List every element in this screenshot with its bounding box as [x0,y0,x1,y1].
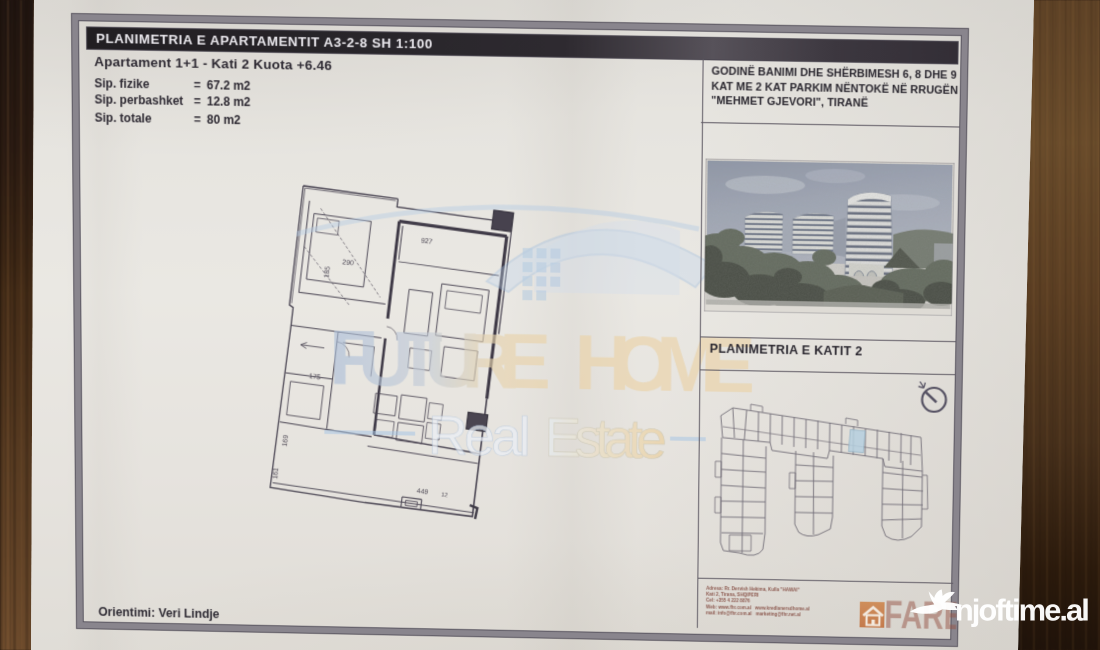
svg-text:Estate: Estate [544,406,667,471]
svg-text:FUTURE: FUTURE [329,314,551,405]
svg-text:HOME: HOME [574,318,755,409]
svg-text:449: 449 [416,488,428,496]
svg-text:169: 169 [282,435,290,447]
svg-text:161: 161 [272,467,280,479]
svg-text:Real: Real [428,403,531,467]
svg-text:12: 12 [441,492,449,499]
svg-text:njoftime.al: njoftime.al [955,592,1090,627]
